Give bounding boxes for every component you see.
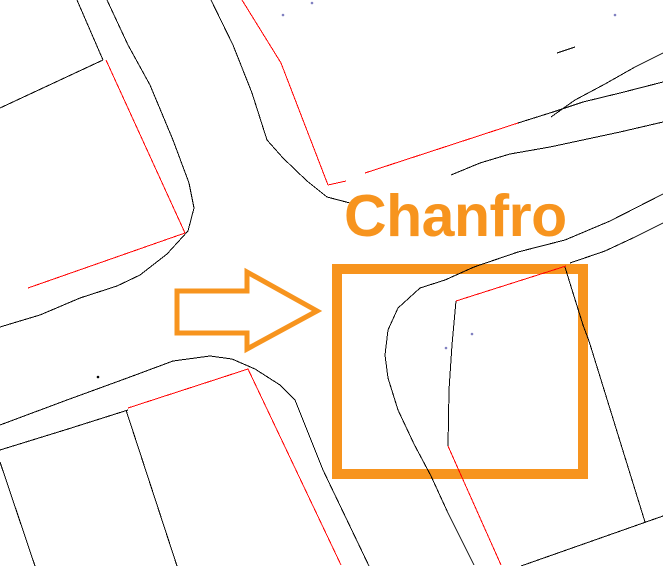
plan-line [0,356,369,566]
point-marker [445,347,448,350]
plan-line [0,0,194,327]
point-marker [311,2,314,5]
point-marker [471,333,474,336]
callout-arrow-right-icon [177,272,317,349]
plan-line [570,223,663,263]
point-marker [282,14,285,17]
plan-line [565,267,645,522]
plan-line [211,0,350,203]
setback-line [242,0,328,185]
setback-line [448,446,501,565]
plan-line [126,410,177,566]
setback-line [365,123,518,173]
plan-line [77,0,103,60]
point-marker [97,376,100,379]
chamfer-callout-label: Chanfro [344,187,567,246]
setback-line [106,60,185,233]
plan-line [0,462,35,566]
setback-line [128,369,341,565]
point-marker [614,14,617,17]
plan-line [0,410,128,450]
plan-line [448,301,456,446]
plan-line [0,60,103,108]
plan-line [385,194,663,565]
setback-line [28,233,185,288]
plan-lines-red [28,0,566,565]
plan-line [521,516,663,566]
cad-drawing-canvas: Chanfro [0,0,663,566]
plan-lines-black [0,0,663,566]
site-plan-drawing [0,0,663,566]
plan-line [557,47,575,53]
plan-line [518,82,663,123]
plan-line [451,122,663,175]
